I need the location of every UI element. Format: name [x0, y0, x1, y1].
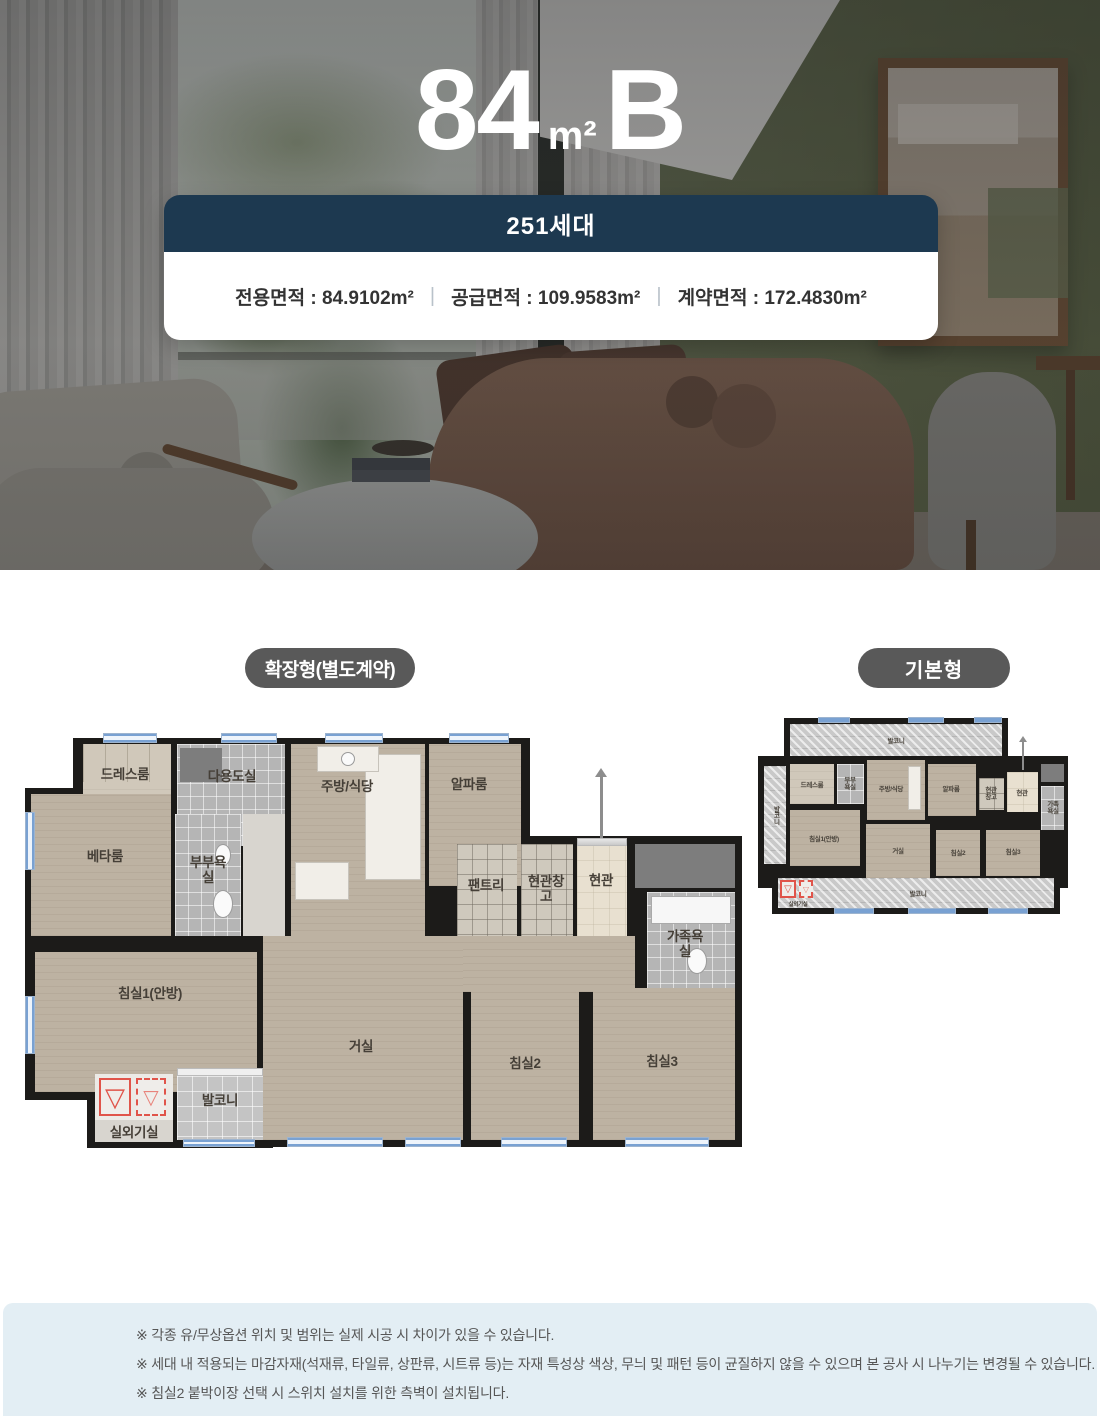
ac-unit-symbol: ▽ — [143, 1085, 158, 1110]
balcony-sill — [177, 1068, 263, 1076]
room-label-bedroom3: 침실3 — [646, 1050, 677, 1070]
area-divider: | — [656, 285, 661, 308]
room-label-alpha: 알파룸 — [942, 783, 959, 793]
window-marker — [183, 1139, 255, 1147]
room-label-pantry: 팬트리 — [468, 874, 504, 894]
room-label-bedroom2: 침실2 — [509, 1052, 540, 1072]
room-label-dressroom: 드레스룸 — [801, 779, 824, 789]
window-marker — [908, 717, 944, 723]
area-private: 전용면적 : 84.9102m² — [235, 283, 414, 310]
floorplan-basic: ▽ ▽ 발코니 발코니 드레스룸 부부욕실 주방/식당 알파룸 현관창고 현관 … — [758, 718, 1082, 914]
room-label-bedroom2: 침실2 — [951, 847, 966, 857]
ac-unit-symbol: ▽ — [803, 885, 809, 894]
area-contract: 계약면적 : 172.4830m² — [678, 283, 867, 310]
unit-size: 84 — [415, 54, 538, 168]
entry-direction-line — [600, 777, 603, 838]
window-marker — [501, 1137, 567, 1147]
entry-wardrobe — [635, 844, 735, 888]
note-line: ※ 세대 내 적용되는 마감자재(석재류, 타일류, 상판류, 시트류 등)는 … — [136, 1354, 1095, 1374]
room-label-family-bath: 가족욕실 — [666, 929, 704, 959]
window-marker — [449, 733, 509, 743]
kitchen-counter — [365, 754, 421, 880]
window-marker — [834, 908, 874, 914]
entry-direction-line — [1022, 742, 1024, 770]
ac-unit-mark: ▽ — [780, 880, 796, 898]
room-label-entrance: 현관 — [1016, 787, 1027, 797]
room-label-dressroom: 드레스룸 — [101, 763, 149, 783]
window-marker — [25, 996, 35, 1054]
window-marker — [325, 733, 383, 743]
room-label-balcony: 발코니 — [909, 888, 926, 898]
bathtub — [651, 896, 731, 924]
window-marker — [908, 908, 956, 914]
room-label-family-bath: 가족욕실 — [1045, 801, 1061, 815]
window-marker — [405, 1137, 461, 1147]
room-label-outdoor-unit: 실외기실 — [788, 900, 807, 908]
area-divider: | — [430, 285, 435, 308]
window-marker — [287, 1137, 383, 1147]
area-info: 전용면적 : 84.9102m² | 공급면적 : 109.9583m² | 계… — [164, 252, 938, 340]
ac-unit-symbol: ▽ — [784, 884, 792, 895]
room-label-bedroom1: 침실1(안방) — [118, 982, 182, 1002]
room-label-bedroom1: 침실1(안방) — [809, 833, 839, 843]
entrance-threshold — [577, 838, 627, 846]
window-marker — [974, 717, 1002, 723]
note-line: ※ 침실2 붙박이장 선택 시 스위치 설치를 위한 측벽이 설치됩니다. — [136, 1383, 509, 1403]
notes-section: ※ 각종 유/무상옵션 위치 및 범위는 실제 시공 시 차이가 있을 수 있습… — [3, 1303, 1097, 1416]
households-badge: 251세대 — [164, 195, 938, 252]
unit-size-unit: m² — [548, 116, 597, 156]
note-line: ※ 각종 유/무상옵션 위치 및 범위는 실제 시공 시 차이가 있을 수 있습… — [136, 1325, 554, 1345]
room-label-master-bath: 부부욕실 — [189, 855, 227, 885]
room-label-outdoor-unit: 실외기실 — [110, 1121, 158, 1141]
room-beta — [31, 794, 171, 936]
room-label-balcony: 발코니 — [887, 735, 904, 745]
room-label-kitchen: 주방/식당 — [879, 783, 903, 793]
room-label-kitchen: 주방/식당 — [321, 775, 373, 795]
kitchen-counter — [908, 766, 921, 810]
unit-type-letter: B — [605, 54, 685, 168]
area-supply: 공급면적 : 109.9583m² — [451, 283, 640, 310]
room-label-utility: 다용도실 — [208, 765, 256, 785]
entry-direction-arrow-icon — [595, 768, 607, 777]
room-label-living: 거실 — [349, 1035, 373, 1055]
info-card: 251세대 전용면적 : 84.9102m² | 공급면적 : 109.9583… — [164, 195, 938, 340]
ac-unit-mark-optional: ▽ — [136, 1078, 166, 1116]
ac-unit-mark-optional: ▽ — [799, 880, 813, 898]
window-marker — [625, 1137, 709, 1147]
kitchen-sink — [341, 752, 355, 766]
room-entrance — [577, 844, 627, 936]
room-label-entry-storage: 현관창고 — [527, 874, 565, 904]
room-label-living: 거실 — [892, 845, 903, 855]
toilet — [213, 890, 233, 918]
room-label-alpha: 알파룸 — [451, 773, 487, 793]
unit-info-page: 84 m² B 251세대 전용면적 : 84.9102m² | 공급면적 : … — [0, 0, 1100, 1416]
page-title: 84 m² B — [0, 54, 1100, 168]
window-marker — [221, 733, 277, 743]
window-marker — [25, 812, 35, 870]
room-label-balcony: 발코니 — [202, 1089, 238, 1109]
ac-unit-mark: ▽ — [99, 1078, 131, 1116]
closet-strip — [243, 814, 285, 936]
entry-wardrobe — [1041, 764, 1064, 782]
room-label-bedroom3: 침실3 — [1006, 846, 1021, 856]
window-marker — [818, 717, 850, 723]
room-label-entrance: 현관 — [589, 869, 613, 889]
room-label-master-bath: 부부욕실 — [842, 777, 858, 791]
plan-type-basic-badge: 기본형 — [858, 648, 1010, 688]
kitchen-island — [295, 862, 349, 900]
ac-unit-symbol: ▽ — [105, 1082, 125, 1113]
window-marker — [988, 908, 1028, 914]
floorplan-expanded: ▽ ▽ 드레스룸 다용도실 주방/식당 알파룸 베타룸 부부욕실 팬트리 현관창… — [25, 712, 740, 1154]
room-label-balcony: 발코니 — [770, 806, 780, 825]
plan-type-expanded-badge: 확장형(별도계약) — [245, 648, 415, 688]
window-marker — [103, 733, 157, 743]
room-label-beta: 베타룸 — [87, 845, 123, 865]
room-label-entry-storage: 현관창고 — [983, 787, 999, 801]
